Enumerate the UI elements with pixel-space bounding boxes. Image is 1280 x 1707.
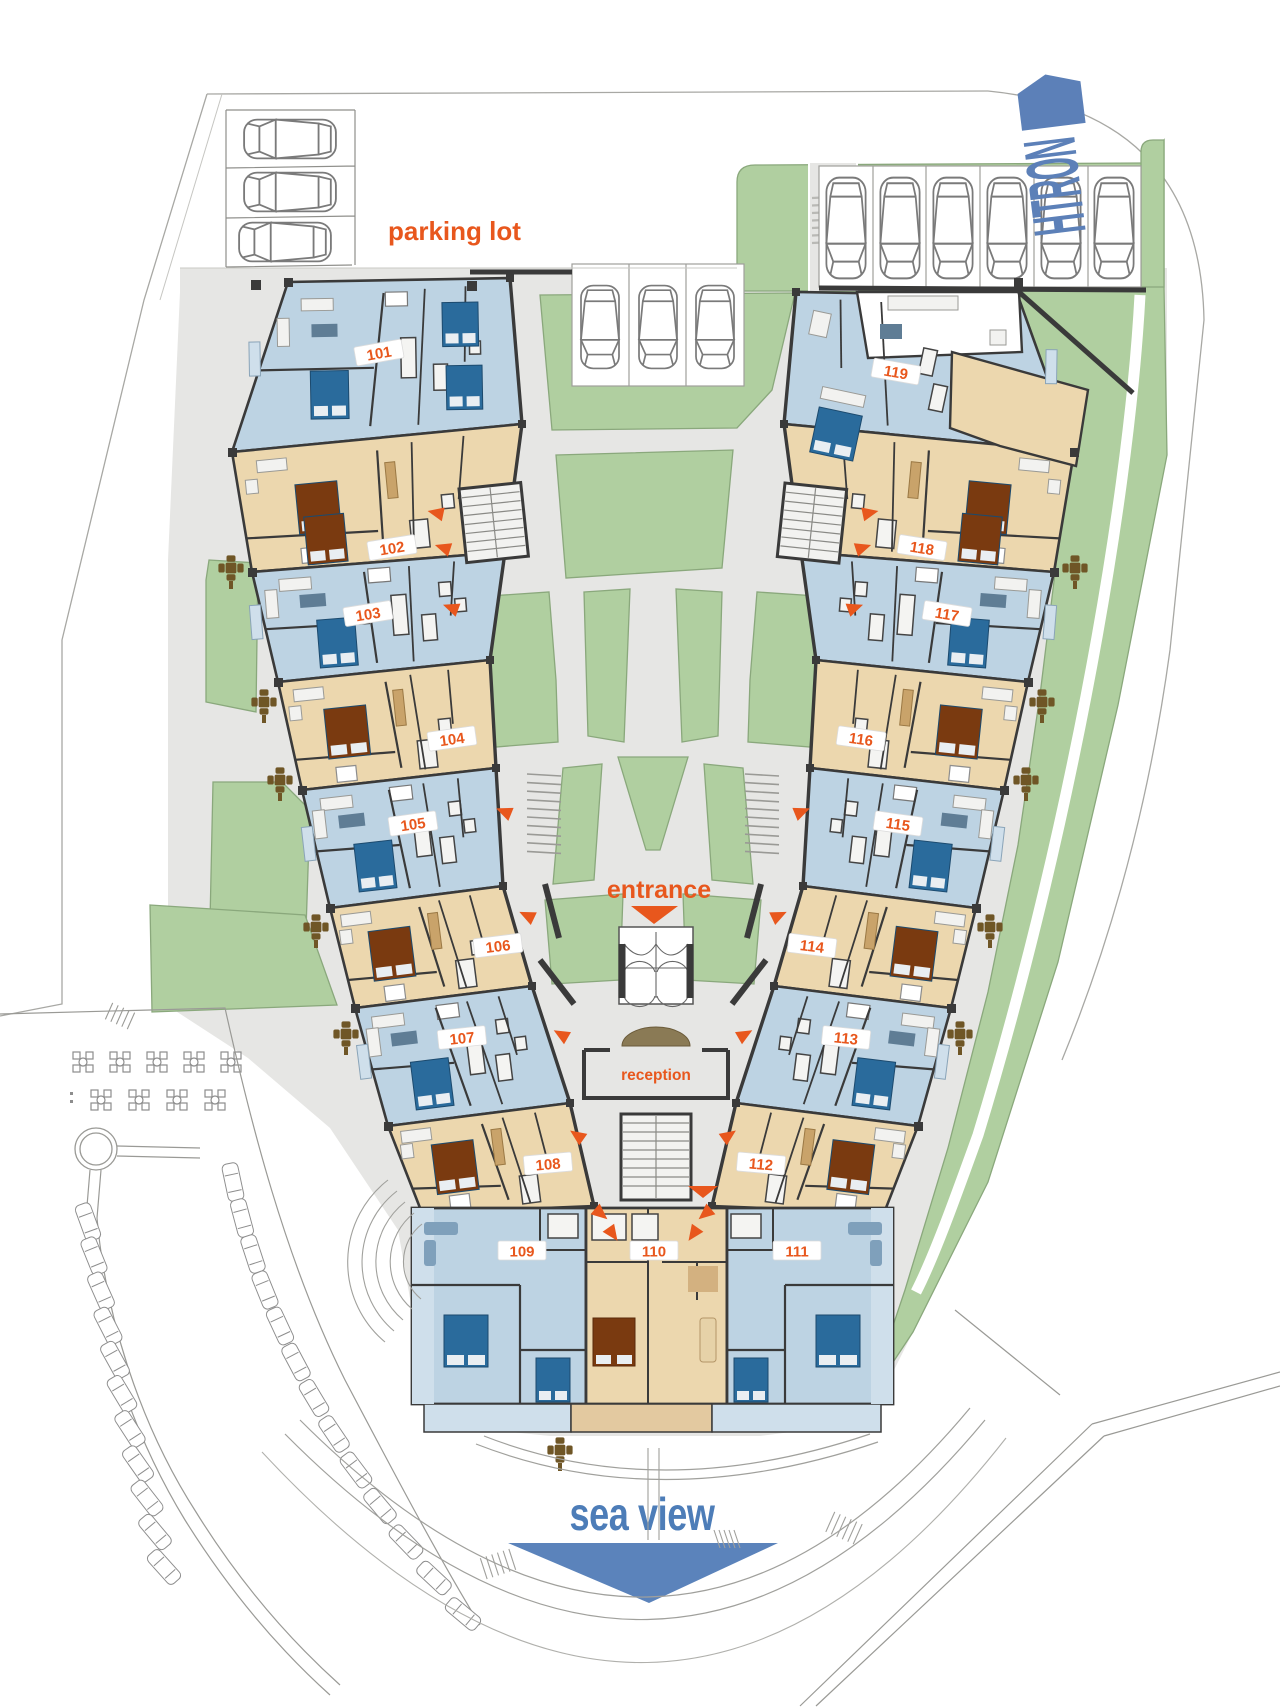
svg-text:116: 116 [848, 730, 874, 750]
svg-text:105: 105 [400, 815, 427, 835]
svg-text:106: 106 [485, 937, 512, 957]
svg-text:115: 115 [885, 815, 911, 835]
svg-text:112: 112 [748, 1155, 774, 1174]
svg-text:sea view: sea view [570, 1489, 716, 1540]
svg-text:reception: reception [621, 1067, 691, 1084]
svg-text:HTRON: HTRON [1007, 134, 1101, 240]
svg-text:104: 104 [439, 730, 467, 750]
svg-text:108: 108 [535, 1155, 561, 1174]
svg-text:109: 109 [509, 1244, 534, 1261]
svg-text:entrance: entrance [607, 876, 711, 904]
svg-text:parking lot: parking lot [388, 216, 521, 246]
svg-text:113: 113 [833, 1029, 859, 1048]
svg-text:110: 110 [642, 1244, 666, 1261]
svg-text:111: 111 [785, 1244, 808, 1261]
svg-text:114: 114 [799, 937, 826, 957]
svg-text:107: 107 [449, 1029, 476, 1049]
